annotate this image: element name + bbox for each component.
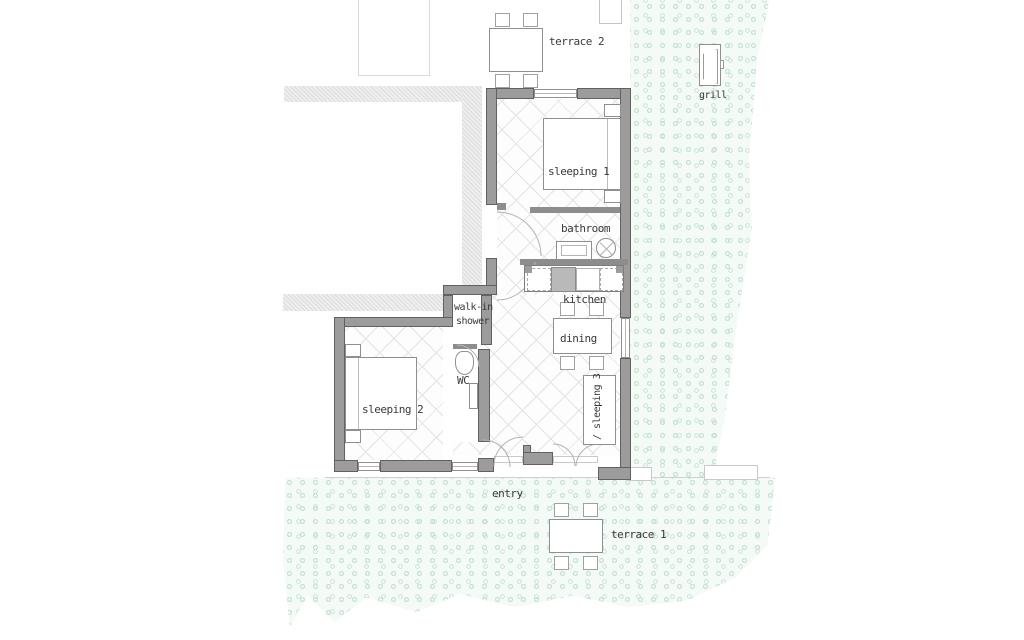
wc-shelf-icon — [469, 383, 478, 409]
wall-wc-right — [478, 349, 490, 442]
nightstand-icon — [345, 430, 361, 443]
wall-bathroom-top — [530, 207, 620, 213]
wall-left-upper — [486, 88, 497, 205]
wall-shower-wc-divider — [453, 344, 477, 349]
wall-sleeping2-left — [334, 317, 345, 472]
wall-step-horizontal — [443, 285, 497, 295]
wall-sleeping2-bottom-corner — [334, 460, 358, 472]
door-sill-terrace — [553, 456, 598, 463]
chimney-outline — [599, 0, 622, 24]
grill-handle — [720, 60, 724, 69]
path-marker — [704, 465, 758, 480]
terrace2-chair-icon — [495, 74, 510, 88]
existing-building-wall-bottom — [283, 294, 463, 311]
sleeping3-label: / sleeping 3 — [592, 380, 604, 440]
wall-sleeping2-top — [334, 317, 453, 327]
terrace2-label: terrace 2 — [549, 36, 604, 48]
nightstand-icon — [604, 190, 621, 203]
entry-label: entry — [492, 488, 523, 500]
wall-bathroom-top-stub — [497, 203, 506, 210]
dining-chair-icon — [589, 356, 604, 370]
sleeping2-label: sleeping 2 — [362, 404, 423, 416]
wall-bottom-long — [380, 460, 452, 472]
existing-building-wall-top — [284, 86, 482, 102]
terrace2-chair-icon — [495, 13, 510, 27]
terrace1-chair-icon — [554, 503, 569, 517]
terrace1-chair-icon — [583, 503, 598, 517]
window-north — [534, 89, 577, 98]
roof-outline — [358, 0, 430, 76]
sleeping1-label: sleeping 1 — [548, 166, 609, 178]
wall-bottom-pier — [478, 458, 494, 472]
wall-entry-pier — [523, 452, 553, 465]
bathroom-sink-icon — [556, 241, 592, 260]
sleeping1-bed-icon — [543, 118, 621, 190]
window-south-1 — [358, 462, 380, 471]
wall-bottom-right-corner — [598, 467, 631, 480]
window-east — [621, 318, 630, 358]
grill-icon — [699, 44, 721, 86]
terrace2-chair-icon — [523, 13, 538, 27]
vegetation-bottom-area — [283, 476, 775, 640]
dining-label: dining — [560, 333, 597, 345]
terrace2-chair-icon — [523, 74, 538, 88]
nightstand-icon — [345, 344, 361, 357]
window-south-2 — [452, 462, 478, 471]
wall-right-lower — [620, 358, 631, 480]
terrace2-table-icon — [489, 28, 543, 72]
kitchen-label: kitchen — [563, 294, 606, 306]
walkin-shower-label-line2: shower — [456, 316, 489, 328]
nightstand-icon — [604, 104, 621, 117]
terrace1-chair-icon — [583, 556, 598, 570]
floor-plan: terrace 2 grill sleeping 1 bathroom kitc… — [0, 0, 1024, 640]
terrace1-label: terrace 1 — [611, 529, 666, 541]
path-marker — [629, 467, 652, 481]
bathroom-toilet-icon — [596, 238, 616, 258]
kitchen-counter-icon — [524, 265, 624, 292]
sleeping2-bed-icon — [345, 357, 417, 430]
door-sill-entry — [494, 456, 523, 463]
dining-chair-icon — [560, 356, 575, 370]
bathroom-label: bathroom — [561, 223, 610, 235]
walkin-shower-label-line1: walk-in — [454, 302, 493, 314]
wc-toilet-icon — [455, 351, 474, 375]
wall-entry-pier-tab — [523, 445, 531, 453]
terrace1-chair-icon — [554, 556, 569, 570]
grill-label: grill — [699, 90, 727, 102]
wc-label: WC — [457, 375, 469, 387]
existing-building-wall-right — [462, 86, 482, 311]
terrace1-table-icon — [549, 519, 603, 553]
